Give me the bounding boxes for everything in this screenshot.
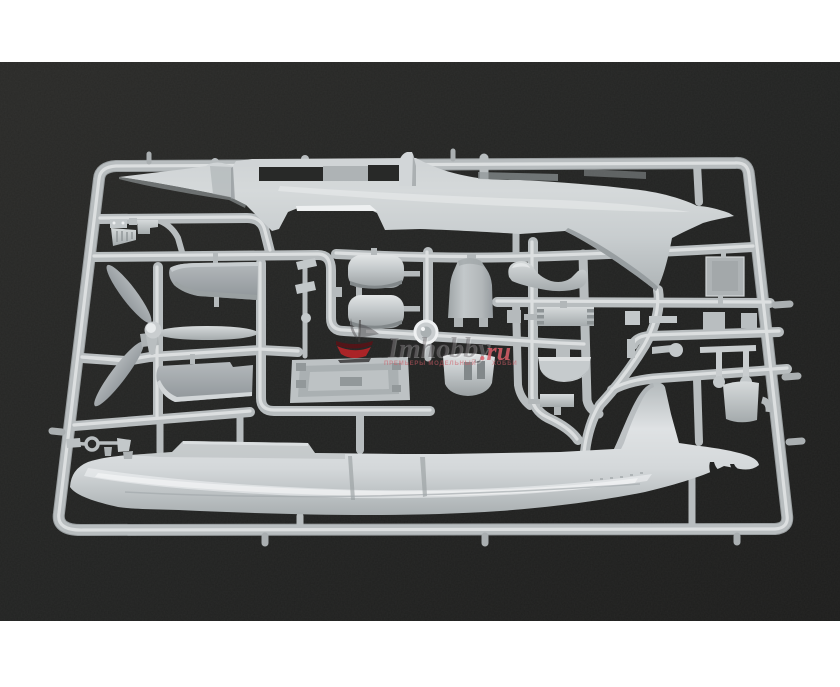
svg-text:ПРЕМЬЕРЫ МОДЕЛЬНЫЙ: ПРЕМЬЕРЫ МОДЕЛЬНЫЙ (384, 359, 476, 367)
svg-text:ХОББИ: ХОББИ (492, 361, 517, 367)
svg-text:Imhobby: Imhobby (386, 333, 490, 364)
